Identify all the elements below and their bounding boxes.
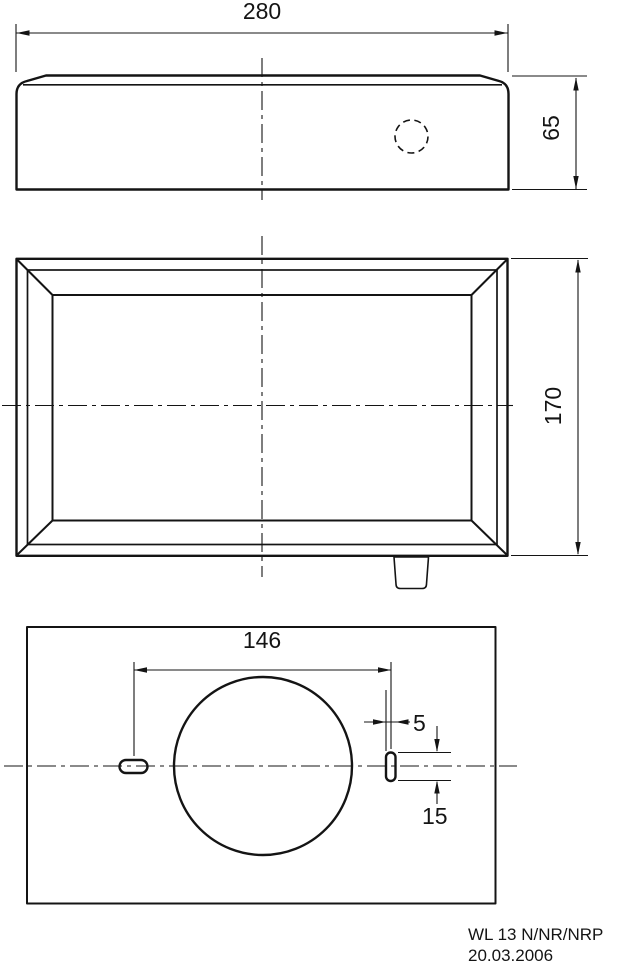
dim-overall-width-label: 280 bbox=[243, 0, 281, 24]
bottom-knob bbox=[394, 557, 429, 589]
top-view bbox=[17, 58, 509, 200]
technical-drawing-page: 280 65 170 bbox=[0, 0, 629, 980]
arrowhead-down-icon bbox=[575, 542, 580, 555]
bevel-diagonal-top-right bbox=[471, 260, 507, 296]
dim-hole-spacing-label: 146 bbox=[243, 627, 281, 653]
bevel-diagonal-top-left bbox=[18, 260, 54, 296]
dimension-housing-depth: 65 bbox=[512, 76, 587, 190]
arrowhead-left-icon bbox=[134, 667, 147, 672]
front-view bbox=[2, 236, 513, 589]
dimension-slot-width: 5 bbox=[364, 690, 426, 751]
dim-slot-width-label: 5 bbox=[413, 710, 426, 736]
arrowhead-right-icon bbox=[378, 667, 391, 672]
arrowhead-down-icon bbox=[434, 739, 439, 752]
product-title: WL 13 N/NR/NRP bbox=[468, 925, 603, 944]
bevel-diagonal-bottom-left bbox=[18, 520, 54, 555]
dim-height-label: 170 bbox=[540, 387, 566, 425]
drawing-canvas: 280 65 170 bbox=[0, 0, 629, 980]
arrowhead-left-icon bbox=[17, 30, 30, 35]
dim-depth-label: 65 bbox=[538, 115, 564, 141]
arrowhead-up-icon bbox=[573, 78, 578, 91]
arrowhead-right-icon bbox=[373, 719, 386, 724]
dimension-hole-spacing: 146 bbox=[134, 627, 391, 756]
hidden-hole-circle bbox=[395, 120, 428, 153]
arrowhead-down-icon bbox=[573, 176, 578, 189]
bevel-diagonal-bottom-right bbox=[471, 520, 507, 555]
mounting-slot-right bbox=[386, 753, 396, 782]
arrowhead-up-icon bbox=[575, 260, 580, 273]
dimension-overall-height: 170 bbox=[511, 259, 588, 556]
drawing-date: 20.03.2006 bbox=[468, 946, 553, 965]
mounting-plate-rect bbox=[27, 627, 496, 904]
dim-slot-length-label: 15 bbox=[422, 803, 448, 829]
arrowhead-right-icon bbox=[495, 30, 508, 35]
arrowhead-up-icon bbox=[434, 781, 439, 794]
dimension-slot-length: 15 bbox=[398, 726, 451, 829]
title-block: WL 13 N/NR/NRP 20.03.2006 bbox=[468, 925, 603, 965]
arrowhead-left-icon bbox=[396, 719, 409, 724]
mounting-plate-view bbox=[4, 627, 517, 904]
